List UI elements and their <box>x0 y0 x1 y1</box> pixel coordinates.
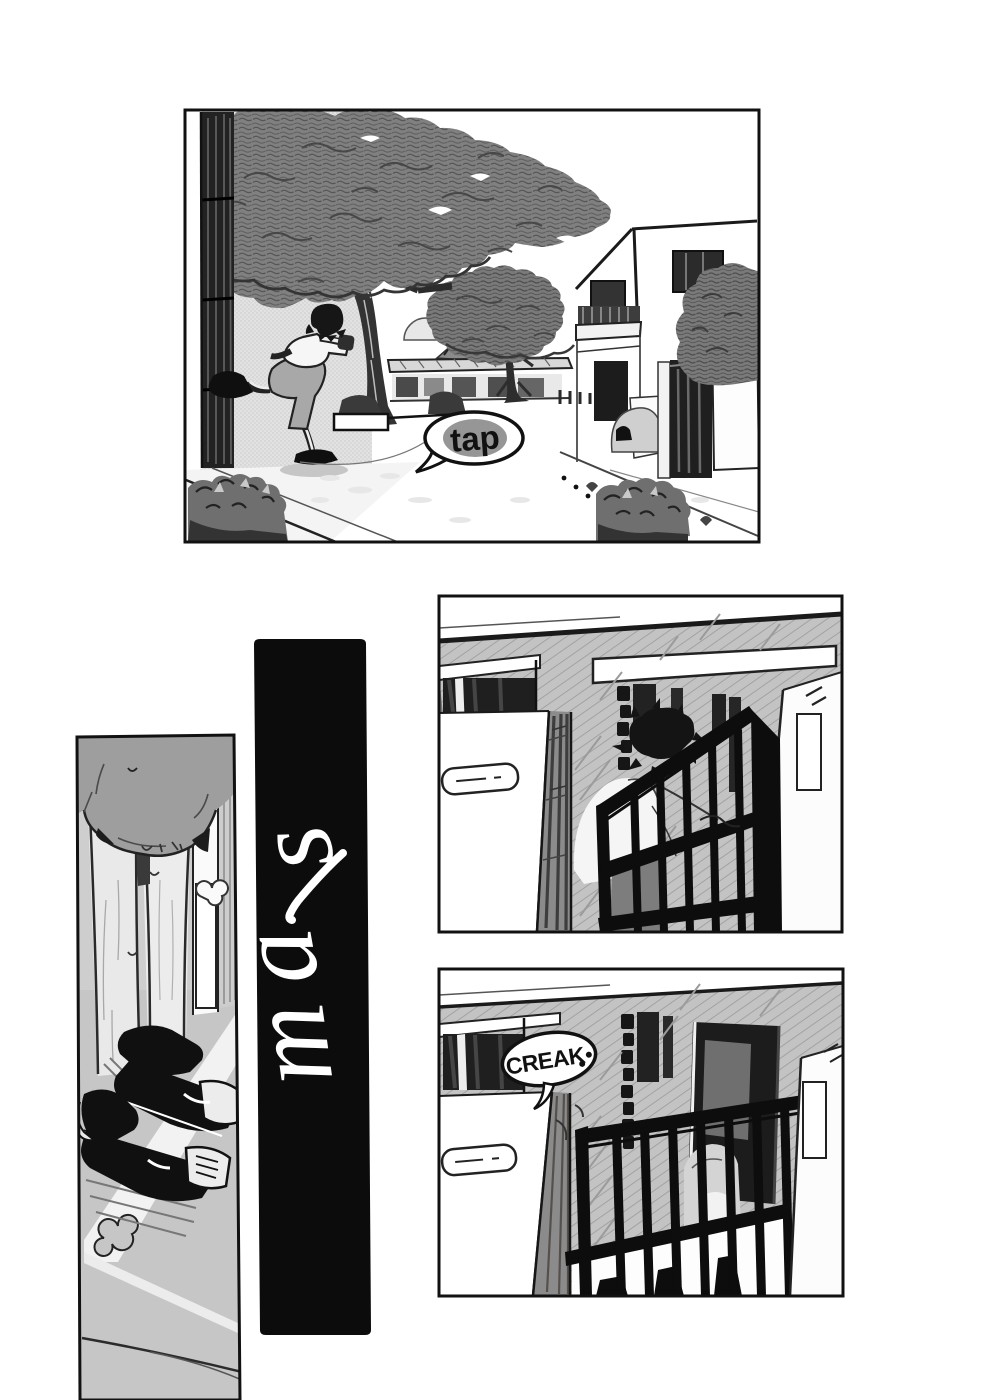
svg-text:tap: tap <box>449 418 501 458</box>
svg-text:m: m <box>224 997 356 1093</box>
